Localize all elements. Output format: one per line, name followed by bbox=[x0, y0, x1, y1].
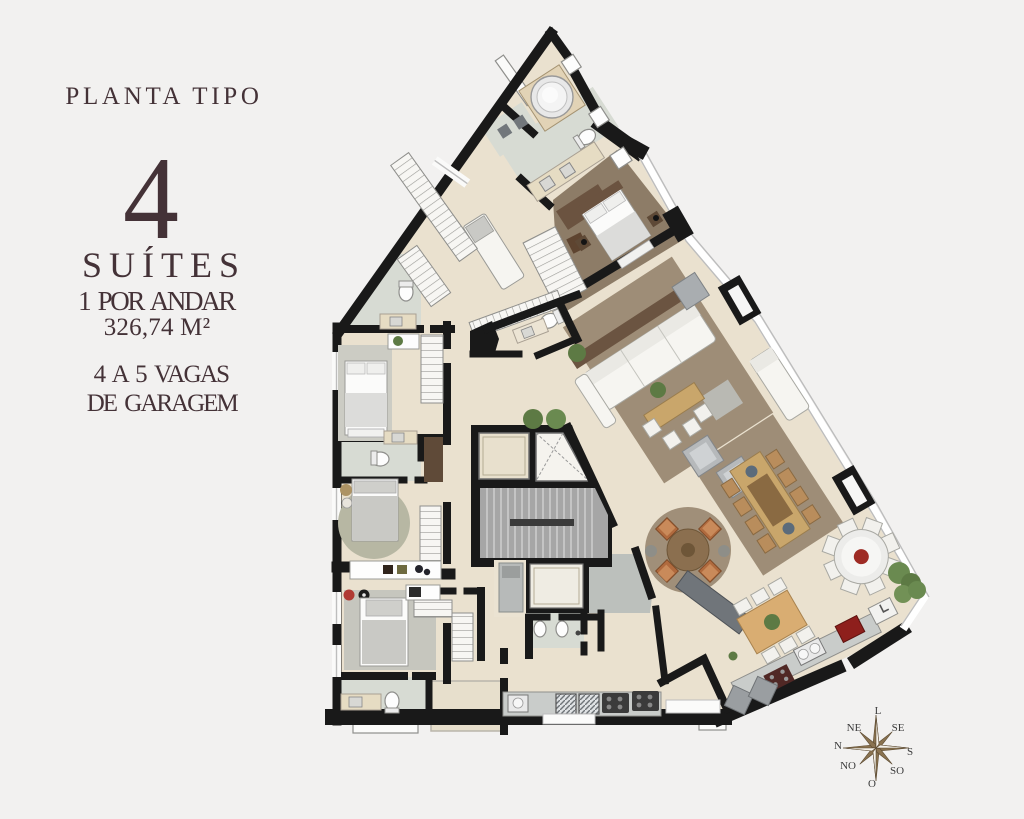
svg-text:N: N bbox=[834, 740, 842, 752]
svg-text:SO: SO bbox=[890, 765, 904, 777]
svg-text:O: O bbox=[868, 778, 876, 790]
svg-text:NO: NO bbox=[840, 760, 856, 772]
svg-text:S: S bbox=[907, 746, 913, 758]
svg-text:L: L bbox=[875, 705, 882, 717]
svg-text:NE: NE bbox=[847, 722, 862, 734]
svg-text:SE: SE bbox=[892, 722, 905, 734]
